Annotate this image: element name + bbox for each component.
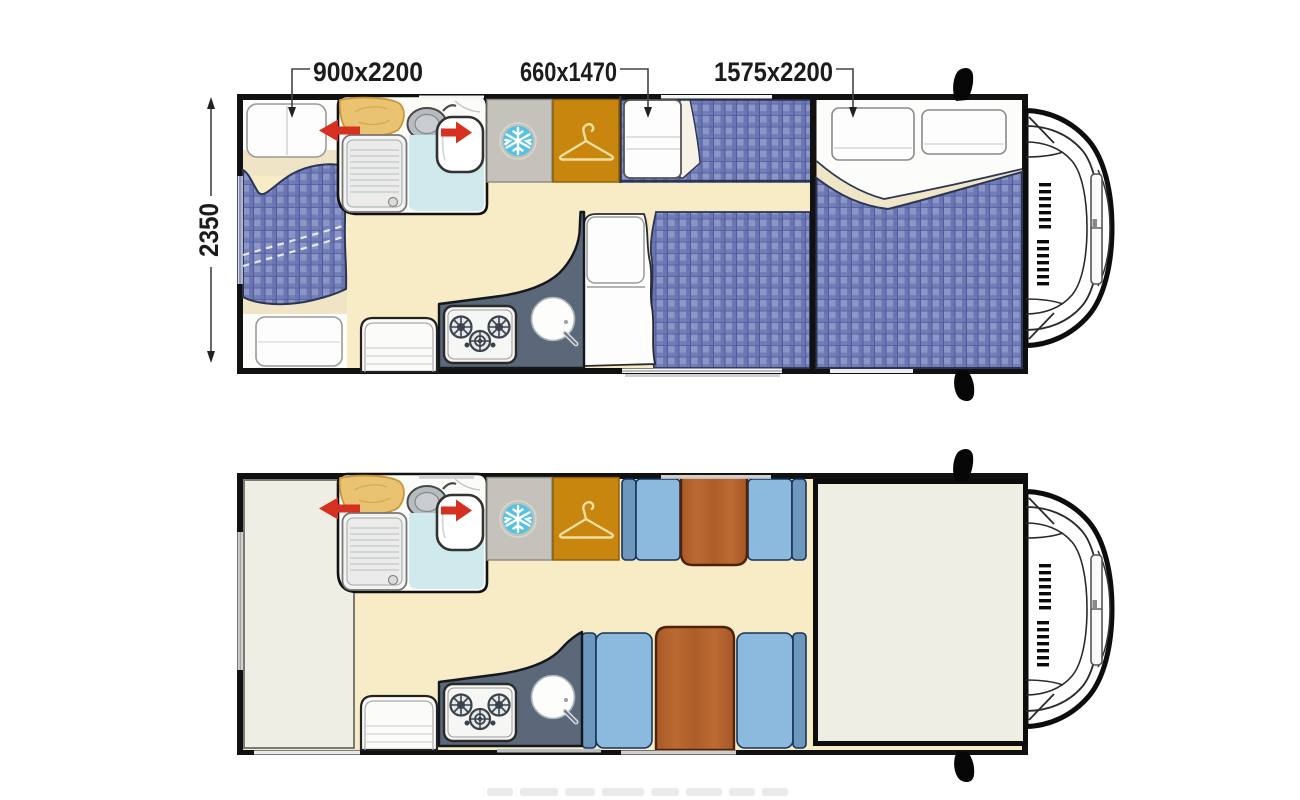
- svg-text:660x1470: 660x1470: [520, 57, 617, 87]
- svg-text:1575x2200: 1575x2200: [714, 57, 833, 87]
- svg-text:2350: 2350: [194, 203, 224, 257]
- svg-text:900x2200: 900x2200: [313, 57, 423, 87]
